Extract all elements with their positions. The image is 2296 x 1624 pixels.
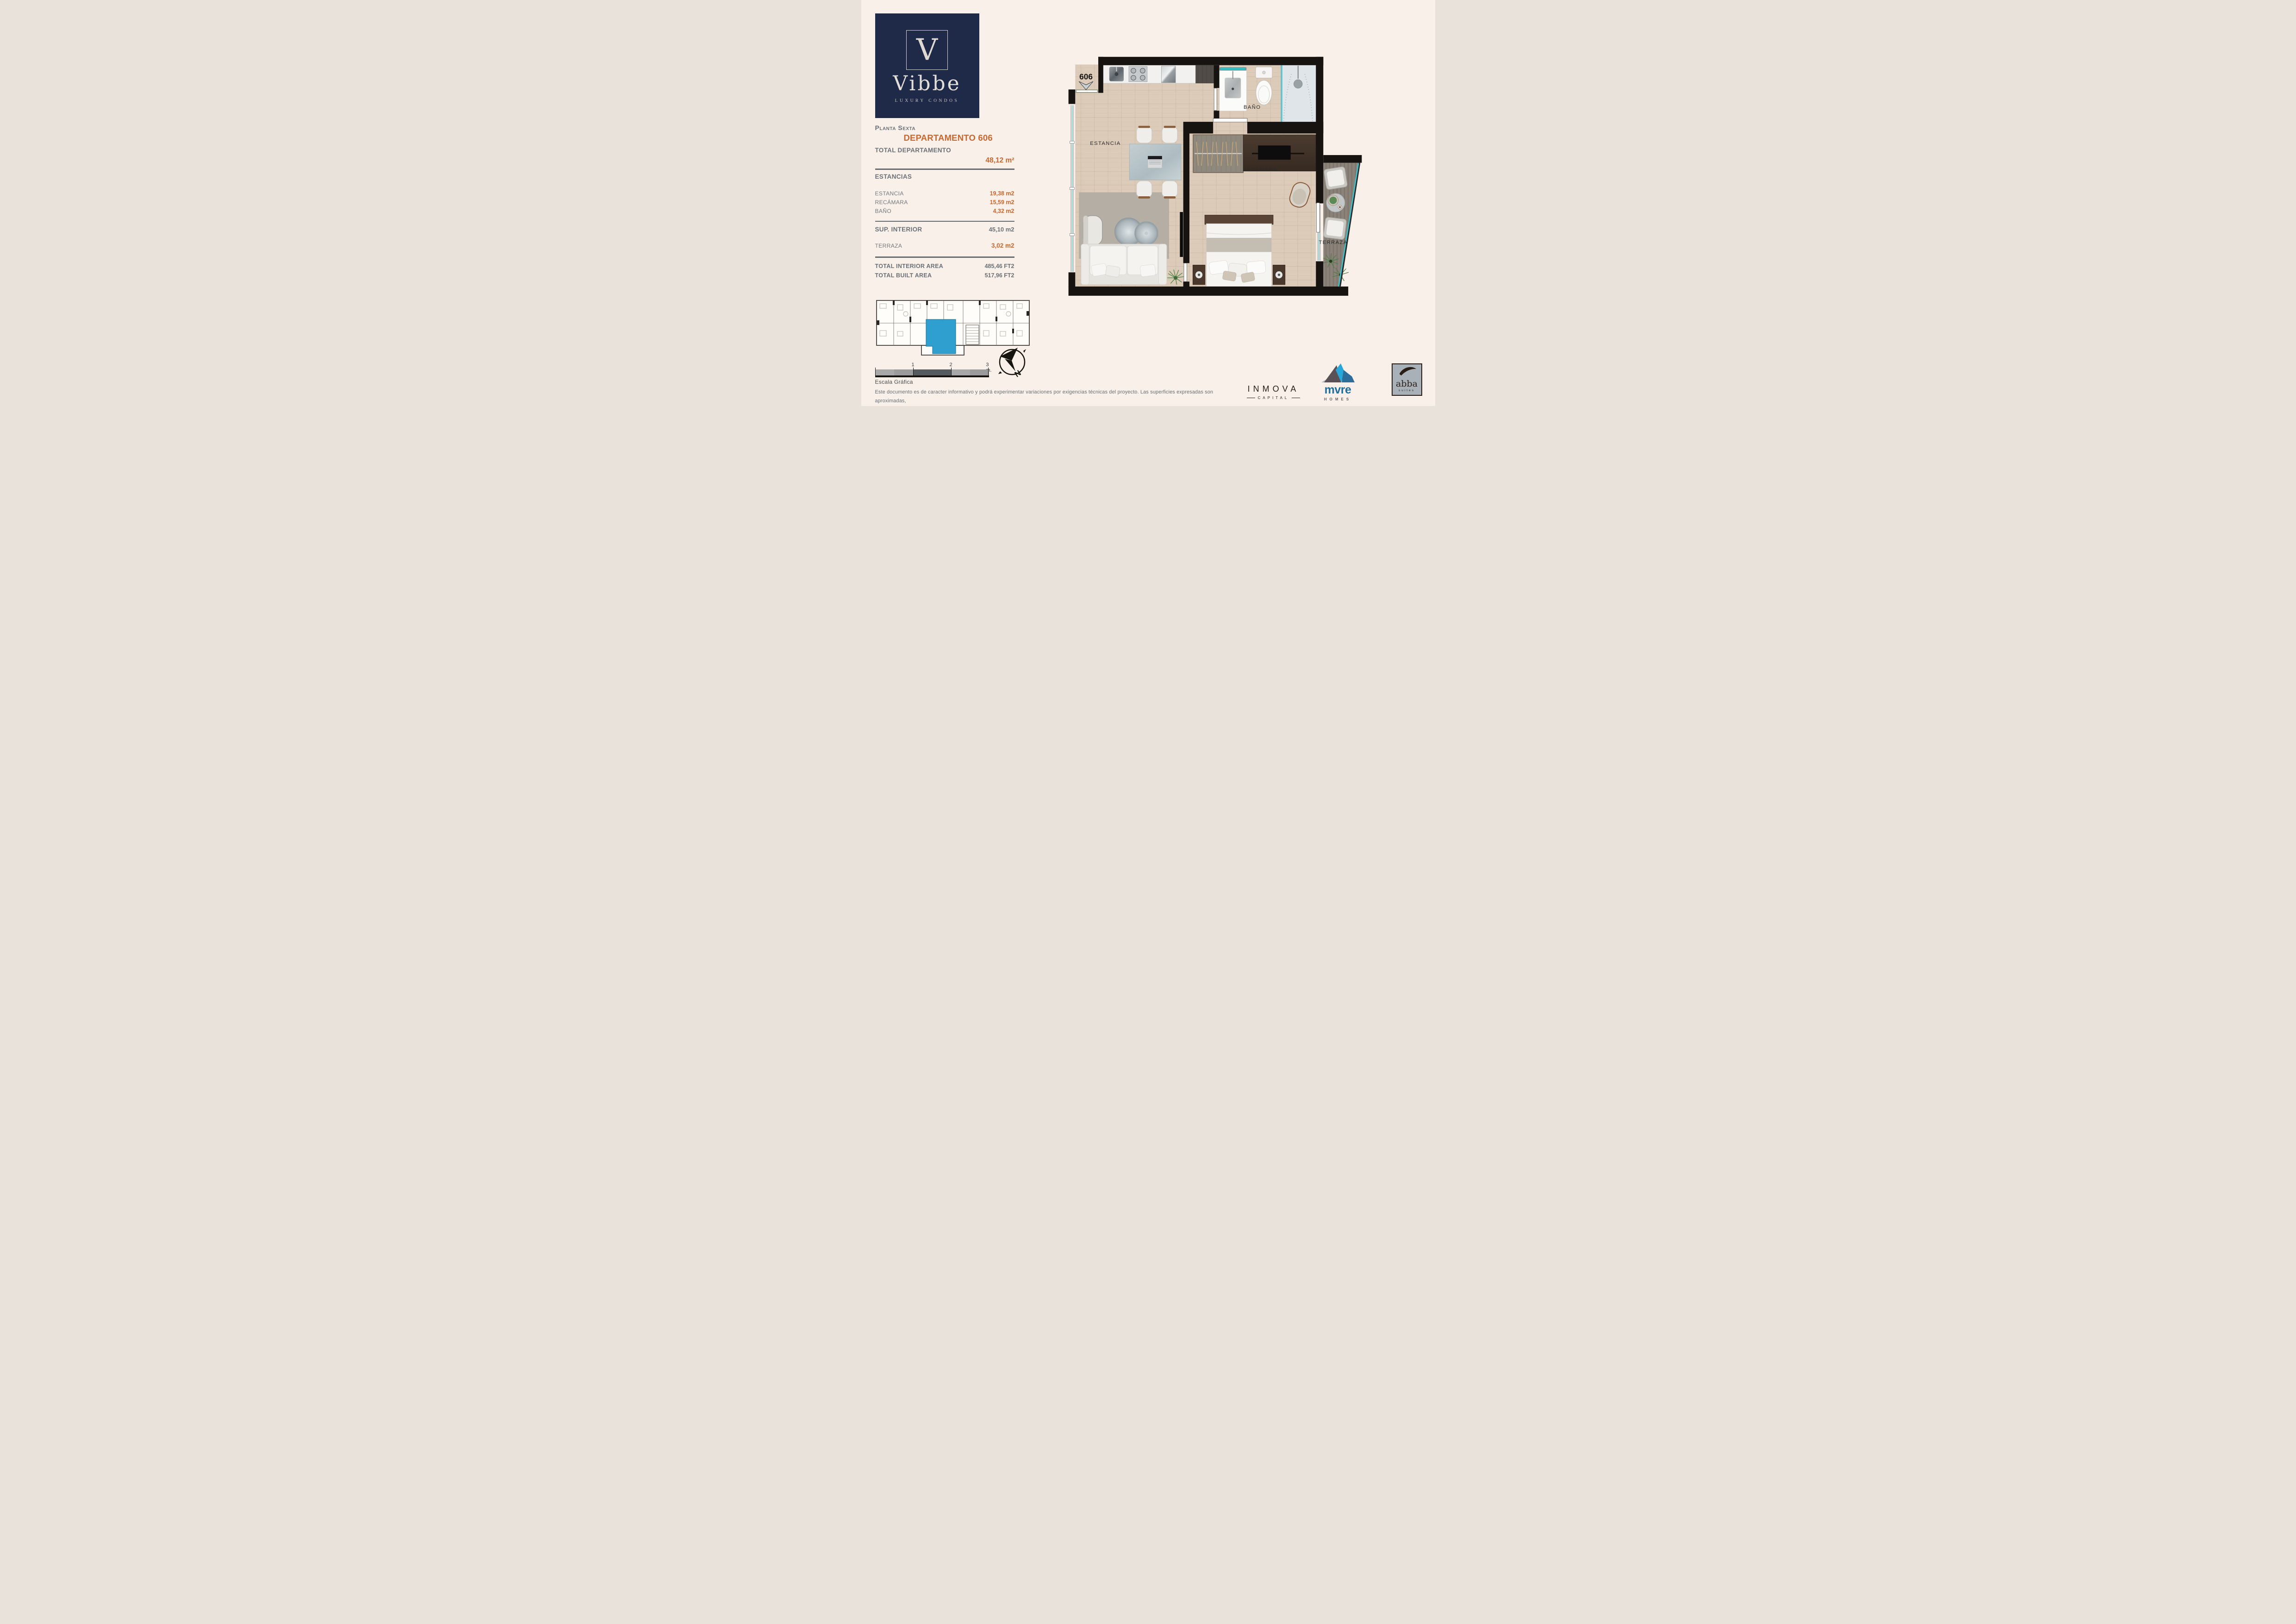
unit-title: DEPARTAMENTO 606 xyxy=(904,133,1014,143)
laptop-screen xyxy=(1148,156,1162,159)
floor-title: Planta Sexta xyxy=(875,124,1014,131)
toilet-flush xyxy=(1262,71,1265,74)
north-compass: N xyxy=(996,344,1029,389)
sup-interior-label: SUP. INTERIOR xyxy=(875,226,922,233)
abba-sail-icon xyxy=(1397,364,1417,376)
vibbe-logo-tagline: LUXURY CONDOS xyxy=(875,99,979,103)
scale-baseline xyxy=(875,375,989,377)
total-interior-row: TOTAL INTERIOR AREA 485,46 FT2 xyxy=(875,263,1014,269)
scale-segment xyxy=(894,369,913,375)
divider xyxy=(875,256,1014,258)
room-label: RECÁMARA xyxy=(875,199,908,206)
compass-tick xyxy=(1023,349,1026,353)
dash-icon xyxy=(1247,398,1255,399)
table-detail xyxy=(1144,231,1148,235)
compass-icon: N xyxy=(996,344,1029,389)
estancias-label: ESTANCIAS xyxy=(875,173,1014,180)
chair-base xyxy=(1164,126,1175,128)
sofa-arm xyxy=(1081,244,1089,285)
terraza-label: TERRAZA xyxy=(875,243,902,249)
compass-tick xyxy=(998,371,1002,374)
compass-needle-tail xyxy=(1005,359,1015,371)
sup-interior-row: SUP. INTERIOR 45,10 m2 xyxy=(875,226,1014,233)
sofa-arm xyxy=(1158,244,1166,285)
refrigerator xyxy=(1161,66,1176,83)
vibbe-monogram-frame: V xyxy=(906,30,948,70)
scale-segment xyxy=(970,369,989,375)
abba-name: abba xyxy=(1393,380,1421,388)
tv-bedroom xyxy=(1258,145,1290,160)
terrace-chair xyxy=(1323,217,1346,240)
room-area-row: RECÁMARA 15,59 m2 xyxy=(875,199,1014,206)
room-value: 15,59 m2 xyxy=(990,199,1014,206)
sink-drain xyxy=(1114,72,1118,76)
scale-segment xyxy=(913,369,932,375)
room-label: ESTANCIA xyxy=(875,190,904,197)
inmova-name: INMOVA xyxy=(1239,384,1308,394)
scale-segment xyxy=(875,369,894,375)
disclaimer-line: Este documento es de caracter informativ… xyxy=(875,388,1232,406)
vanity-shelf xyxy=(1220,68,1246,70)
total-departamento-value: 48,12 m² xyxy=(875,156,1014,165)
scale-tick-label: 2 xyxy=(949,362,952,368)
plant-pot xyxy=(1174,276,1177,280)
mvre-logo: mvre HOMES xyxy=(1319,363,1356,401)
terraza-row: TERRAZA 3,02 m2 xyxy=(875,242,1014,249)
speaker-center xyxy=(1277,274,1280,276)
inmova-logo: INMOVA CAPITAL xyxy=(1239,384,1308,400)
dining-chair xyxy=(1136,181,1151,198)
palm-pot xyxy=(1329,260,1332,263)
terraza-label: TERRAZA xyxy=(1319,240,1347,245)
mvre-homes: HOMES xyxy=(1319,397,1356,401)
dining-chair xyxy=(1162,181,1177,198)
scale-tick xyxy=(988,368,989,375)
unit-info-panel: Planta Sexta DEPARTAMENTO 606 TOTAL DEPA… xyxy=(875,124,1014,279)
disclaimer: Este documento es de caracter informativ… xyxy=(875,388,1232,406)
sup-interior-value: 45,10 m2 xyxy=(989,226,1014,233)
scale-segment xyxy=(951,369,970,375)
inmova-capital: CAPITAL xyxy=(1239,396,1308,400)
scale-tick xyxy=(951,368,952,375)
dining-chair xyxy=(1162,126,1177,143)
vibbe-logo-name: Vibbe xyxy=(875,72,979,95)
mvre-mountain-icon xyxy=(1321,363,1355,383)
terrace-chair xyxy=(1324,167,1348,190)
vibbe-monogram-letter: V xyxy=(907,31,947,69)
dash-icon xyxy=(1292,398,1300,399)
bano-label: BAÑO xyxy=(1243,104,1260,110)
bed-throw xyxy=(1206,238,1271,252)
coffee xyxy=(1339,206,1341,208)
scale-tick-label: 1 xyxy=(911,362,914,368)
speaker-center xyxy=(1197,274,1200,276)
floor-plan-svg: 606 ESTANCIA BAÑO RECÁMARA TERRAZA xyxy=(1067,49,1375,299)
floor-plan: 606 ESTANCIA BAÑO RECÁMARA TERRAZA xyxy=(1067,49,1375,299)
scale-caption: Escala Gráfica xyxy=(875,379,913,385)
room-label: BAÑO xyxy=(875,208,892,214)
total-built-row: TOTAL BUILT AREA 517,96 FT2 xyxy=(875,272,1014,279)
room-area-row: ESTANCIA 19,38 m2 xyxy=(875,190,1014,197)
brochure-page: V Vibbe LUXURY CONDOS Planta Sexta DEPAR… xyxy=(861,0,1435,406)
laptop-keyboard xyxy=(1148,159,1162,168)
room-value: 4,32 m2 xyxy=(993,208,1014,214)
shower-glass-side xyxy=(1281,65,1282,127)
room-value: 19,38 m2 xyxy=(990,190,1014,197)
bed-headboard xyxy=(1205,215,1273,225)
chair-base xyxy=(1138,126,1150,128)
room-area-row: BAÑO 4,32 m2 xyxy=(875,208,1014,214)
scale-tick xyxy=(875,368,876,375)
shower-head xyxy=(1294,80,1302,88)
estancia-label: ESTANCIA xyxy=(1090,141,1120,146)
abba-logo: abba suites xyxy=(1392,363,1422,396)
inmova-sub-text: CAPITAL xyxy=(1258,396,1289,400)
unit-number: 606 xyxy=(1079,72,1093,81)
chair-base xyxy=(1164,196,1175,199)
total-built-value: 517,96 FT2 xyxy=(985,272,1014,279)
vibbe-logo-card: V Vibbe LUXURY CONDOS xyxy=(875,13,979,118)
total-interior-label: TOTAL INTERIOR AREA xyxy=(875,263,944,269)
scale-segment xyxy=(932,369,951,375)
tv-living xyxy=(1180,212,1183,257)
dining-chair xyxy=(1136,126,1151,143)
graphic-scale: 1 2 3 m. xyxy=(875,362,989,378)
chair-base xyxy=(1138,196,1150,199)
divider xyxy=(875,169,1014,170)
terrace-plant xyxy=(1329,197,1337,204)
scale-tick xyxy=(913,368,914,375)
abba-suites: suites xyxy=(1393,389,1421,392)
vanity-drain xyxy=(1232,87,1234,90)
mvre-name: mvre xyxy=(1319,384,1356,396)
entry-door xyxy=(1076,90,1097,93)
total-interior-value: 485,46 FT2 xyxy=(985,263,1014,269)
bed xyxy=(1206,224,1271,287)
terraza-value: 3,02 m2 xyxy=(991,242,1014,249)
armchair-back xyxy=(1083,216,1088,245)
disclaimer-line: podrán experimentar modificaciones por r… xyxy=(875,406,1232,406)
divider xyxy=(875,221,1014,222)
total-departamento-label: TOTAL DEPARTAMENTO xyxy=(875,147,1014,154)
total-built-label: TOTAL BUILT AREA xyxy=(875,272,932,279)
recamara-label: RECÁMARA xyxy=(1242,167,1277,173)
